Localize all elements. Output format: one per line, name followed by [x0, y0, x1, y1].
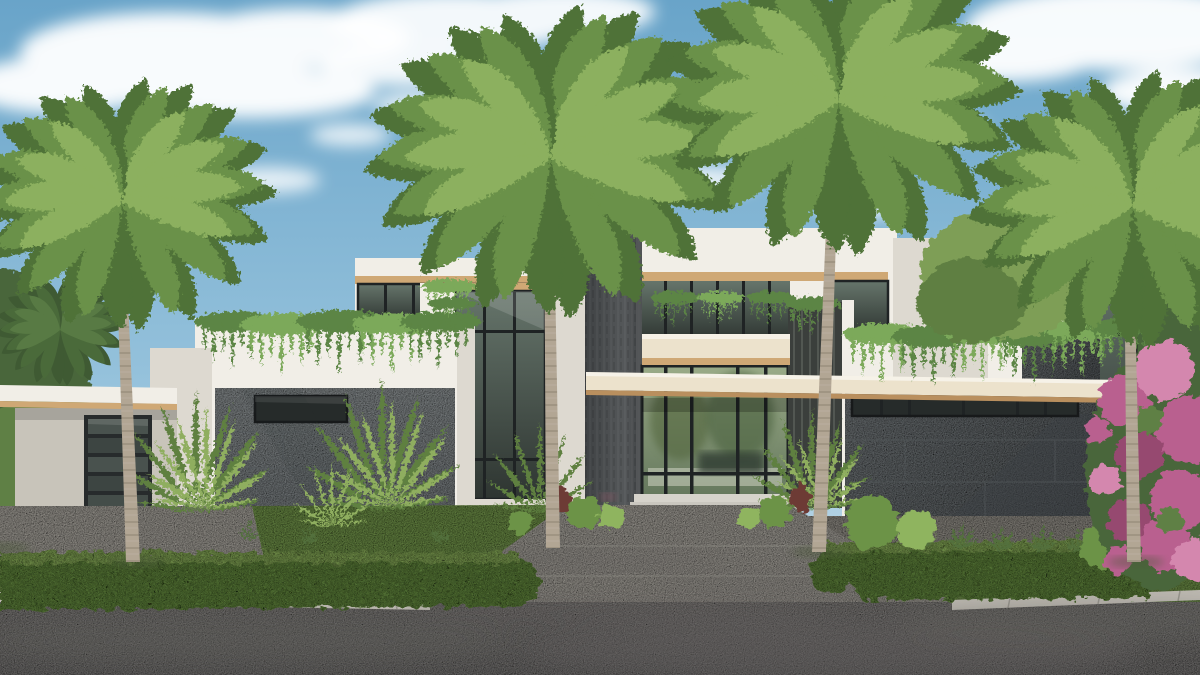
garage-door	[84, 415, 152, 512]
carport-roof-fascia	[0, 385, 177, 404]
furniture-silhouette	[698, 452, 764, 474]
scene-svg	[0, 0, 1200, 675]
hedge-left	[0, 552, 540, 610]
canopy-shadow-on-glass	[642, 398, 788, 412]
balcony-slab	[642, 334, 790, 365]
rendering-canvas	[0, 0, 1200, 675]
house-number-mark	[599, 493, 617, 501]
